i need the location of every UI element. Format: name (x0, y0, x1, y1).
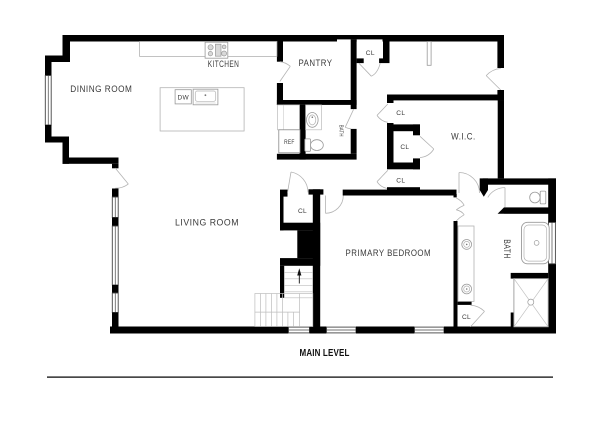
svg-text:DW: DW (177, 94, 189, 101)
svg-text:BATH: BATH (338, 125, 344, 137)
svg-text:PANTRY: PANTRY (299, 58, 333, 68)
svg-text:REF: REF (284, 139, 295, 146)
svg-text:W.I.C.: W.I.C. (451, 132, 476, 142)
svg-text:CL: CL (462, 314, 471, 321)
svg-text:CL: CL (298, 208, 307, 215)
svg-text:PRIMARY BEDROOM: PRIMARY BEDROOM (346, 248, 432, 258)
svg-text:BATH: BATH (502, 239, 512, 259)
svg-text:MAIN LEVEL: MAIN LEVEL (300, 347, 350, 359)
svg-text:KITCHEN: KITCHEN (208, 59, 240, 69)
svg-text:DINING ROOM: DINING ROOM (70, 84, 132, 94)
svg-text:CL: CL (400, 144, 409, 151)
svg-text:LIVING ROOM: LIVING ROOM (175, 217, 239, 227)
svg-text:CL: CL (396, 177, 405, 184)
svg-text:CL: CL (396, 110, 405, 117)
svg-text:CL: CL (366, 50, 375, 57)
